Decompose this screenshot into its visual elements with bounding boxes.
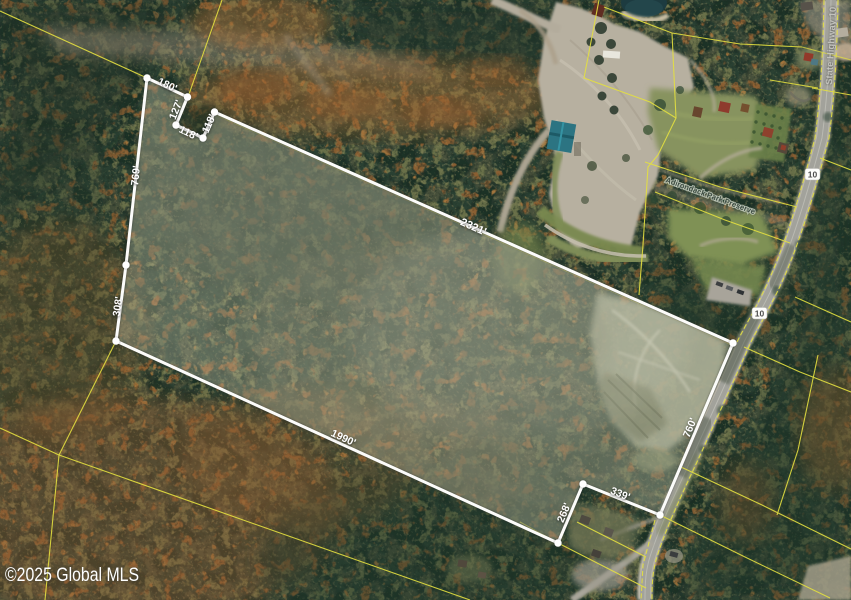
svg-text:©2025 Global MLS: ©2025 Global MLS — [5, 564, 139, 586]
svg-text:10: 10 — [808, 170, 818, 180]
svg-text:10: 10 — [755, 309, 765, 319]
svg-text:769': 769' — [129, 165, 143, 186]
